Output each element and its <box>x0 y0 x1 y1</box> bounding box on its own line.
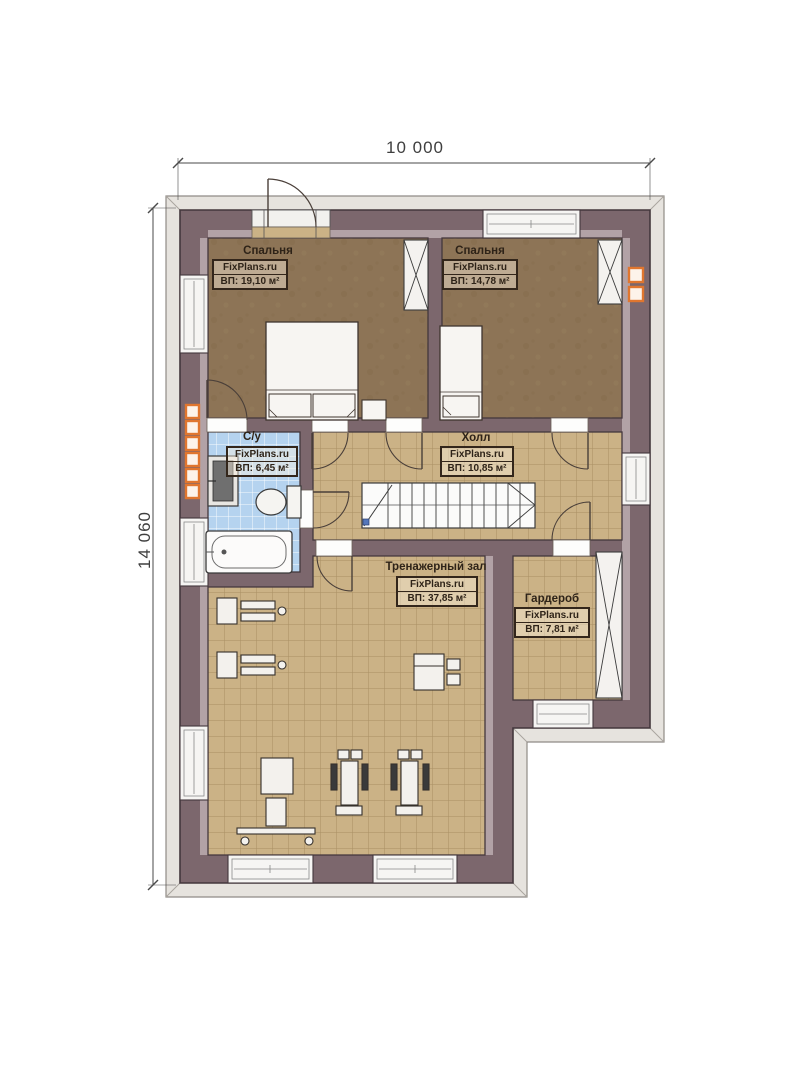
staircase <box>362 483 535 528</box>
watermark-text: FixPlans.ru <box>442 448 512 461</box>
stair-section-marker <box>363 519 369 525</box>
room-label-gym-name: Тренажерный зал <box>361 561 511 573</box>
watermark-text: FixPlans.ru <box>398 578 476 591</box>
window-left-bathroom <box>180 518 208 586</box>
window-right-hall <box>622 453 650 505</box>
room-label-gym-box: FixPlans.ru ВП: 37,85 м² <box>396 576 478 607</box>
room-label-hall-name: Холл <box>421 432 531 444</box>
closet-wardrobe <box>596 552 622 698</box>
room-area-text: ВП: 14,78 м² <box>444 274 516 288</box>
room-area-text: ВП: 7,81 м² <box>516 622 588 636</box>
window-bottom-wardrobe <box>533 700 593 728</box>
window-left-bedroom1 <box>180 275 208 353</box>
window-top-bedroom2 <box>483 210 580 238</box>
bed-single <box>440 326 482 420</box>
closet-bedroom2 <box>598 240 622 304</box>
room-label-hall-box: FixPlans.ru ВП: 10,85 м² <box>440 446 514 477</box>
floor-plan-drawing <box>0 0 792 1080</box>
room-label-bedroom-1-box: FixPlans.ru ВП: 19,10 м² <box>212 259 288 290</box>
room-label-bedroom-2-name: Спальня <box>425 245 535 257</box>
room-area-text: ВП: 6,45 м² <box>228 461 296 475</box>
room-label-bathroom-box: FixPlans.ru ВП: 6,45 м² <box>226 446 298 477</box>
window-bottom-gym-2 <box>373 855 457 883</box>
room-area-text: ВП: 37,85 м² <box>398 591 476 605</box>
watermark-text: FixPlans.ru <box>214 261 286 274</box>
dimension-height-label: 14 060 <box>135 500 155 580</box>
room-label-bedroom-1-name: Спальня <box>213 245 323 257</box>
room-label-wardrobe-box: FixPlans.ru ВП: 7,81 м² <box>514 607 590 638</box>
room-area-text: ВП: 19,10 м² <box>214 274 286 288</box>
window-bottom-gym-1 <box>228 855 313 883</box>
watermark-text: FixPlans.ru <box>516 609 588 622</box>
room-label-bedroom-2-box: FixPlans.ru ВП: 14,78 м² <box>442 259 518 290</box>
room-area-text: ВП: 10,85 м² <box>442 461 512 475</box>
bathtub <box>206 531 292 573</box>
toilet <box>256 486 301 518</box>
floor-plan-page: 10 000 14 060 Спальня FixPlans.ru ВП: 19… <box>0 0 792 1080</box>
bedside-table <box>362 400 386 420</box>
room-label-bathroom-name: С/у <box>197 431 307 443</box>
watermark-text: FixPlans.ru <box>444 261 516 274</box>
room-label-wardrobe-name: Гардероб <box>497 593 607 605</box>
dimension-width-label: 10 000 <box>340 138 490 158</box>
window-left-gym <box>180 726 208 800</box>
watermark-text: FixPlans.ru <box>228 448 296 461</box>
